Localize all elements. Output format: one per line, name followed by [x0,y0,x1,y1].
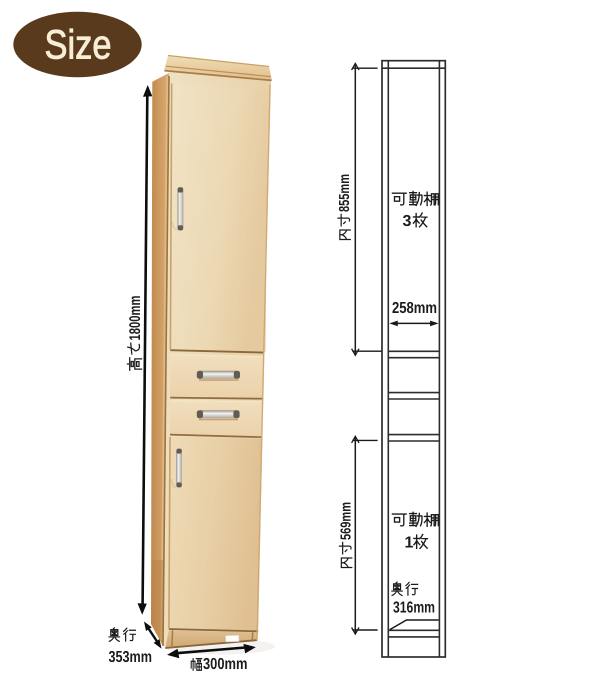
svg-text:1800mm: 1800mm [127,296,144,341]
svg-text:353mm: 353mm [109,649,153,666]
svg-text:569mm: 569mm [339,502,355,540]
svg-text:Size: Size [45,22,112,68]
svg-text:855mm: 855mm [337,174,353,212]
svg-text:300mm: 300mm [203,656,248,673]
svg-text:258mm: 258mm [392,300,437,317]
svg-text:316mm: 316mm [393,600,435,617]
svg-text:1: 1 [405,535,414,552]
svg-text:3: 3 [403,213,412,230]
